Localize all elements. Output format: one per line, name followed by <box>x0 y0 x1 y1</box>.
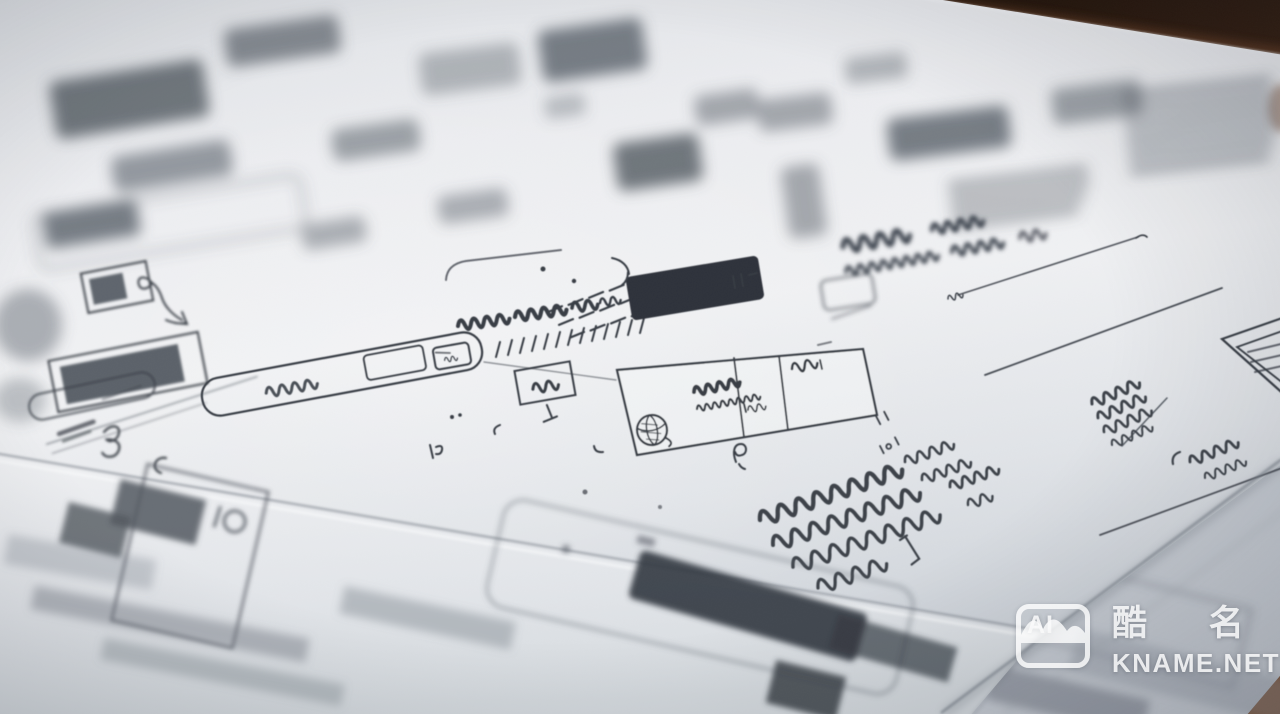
watermark-text: 酷 名 KNAME.NET <box>1112 606 1280 679</box>
site-text: KNAME.NET <box>1112 648 1280 679</box>
photo-stage: AI 酷 名 KNAME.NET <box>0 0 1280 714</box>
image-ai-icon: AI <box>1016 604 1090 668</box>
watermark: AI 酷 名 KNAME.NET <box>1016 604 1280 679</box>
brand-text: 酷 名 <box>1112 606 1270 641</box>
mountain-icon <box>1021 609 1085 643</box>
